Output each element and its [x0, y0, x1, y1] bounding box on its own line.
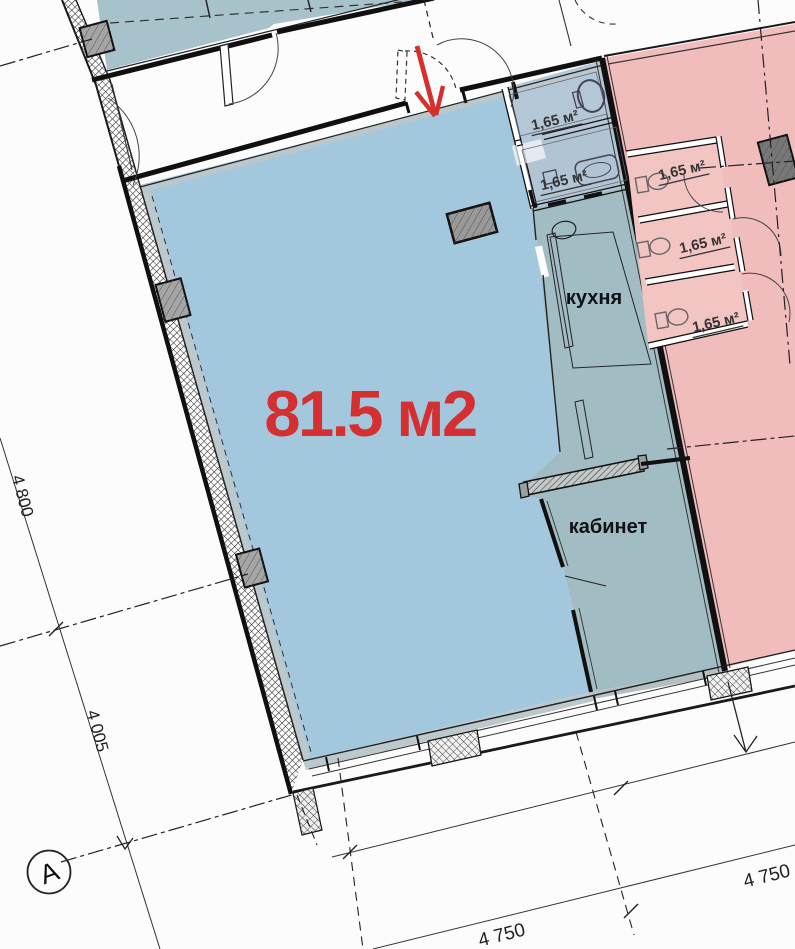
svg-text:кухня: кухня	[566, 287, 622, 309]
svg-text:кабинет: кабинет	[569, 516, 648, 538]
svg-text:81.5 м2: 81.5 м2	[264, 377, 476, 450]
